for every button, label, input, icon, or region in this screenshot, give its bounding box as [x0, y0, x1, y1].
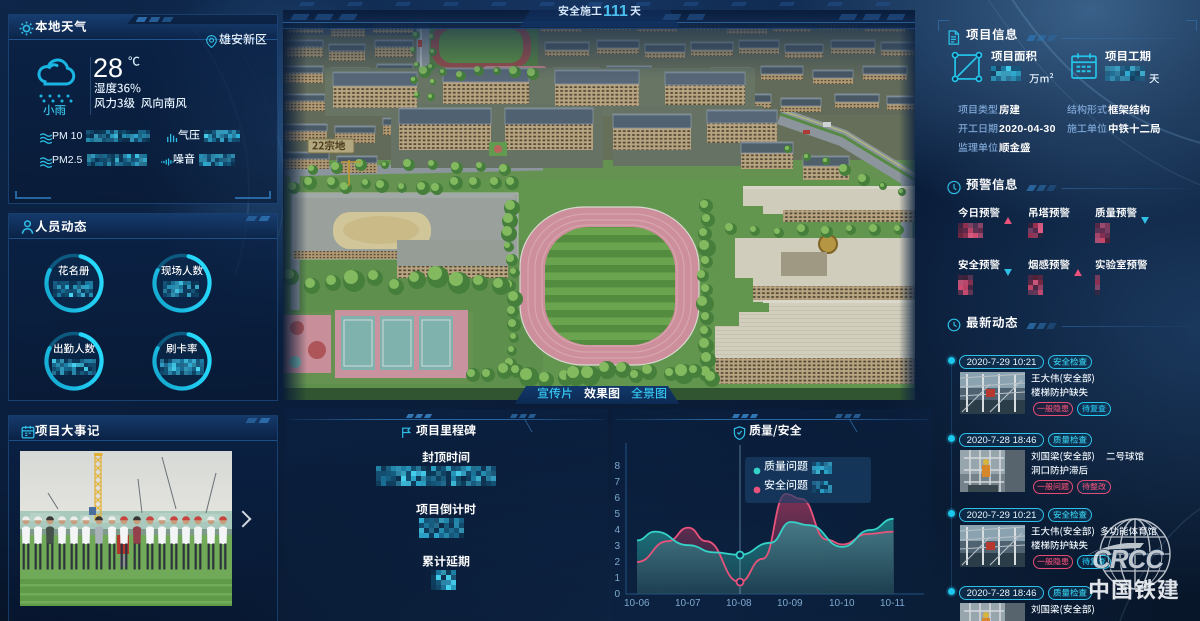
svg-text:CRCC: CRCC — [1092, 544, 1165, 574]
